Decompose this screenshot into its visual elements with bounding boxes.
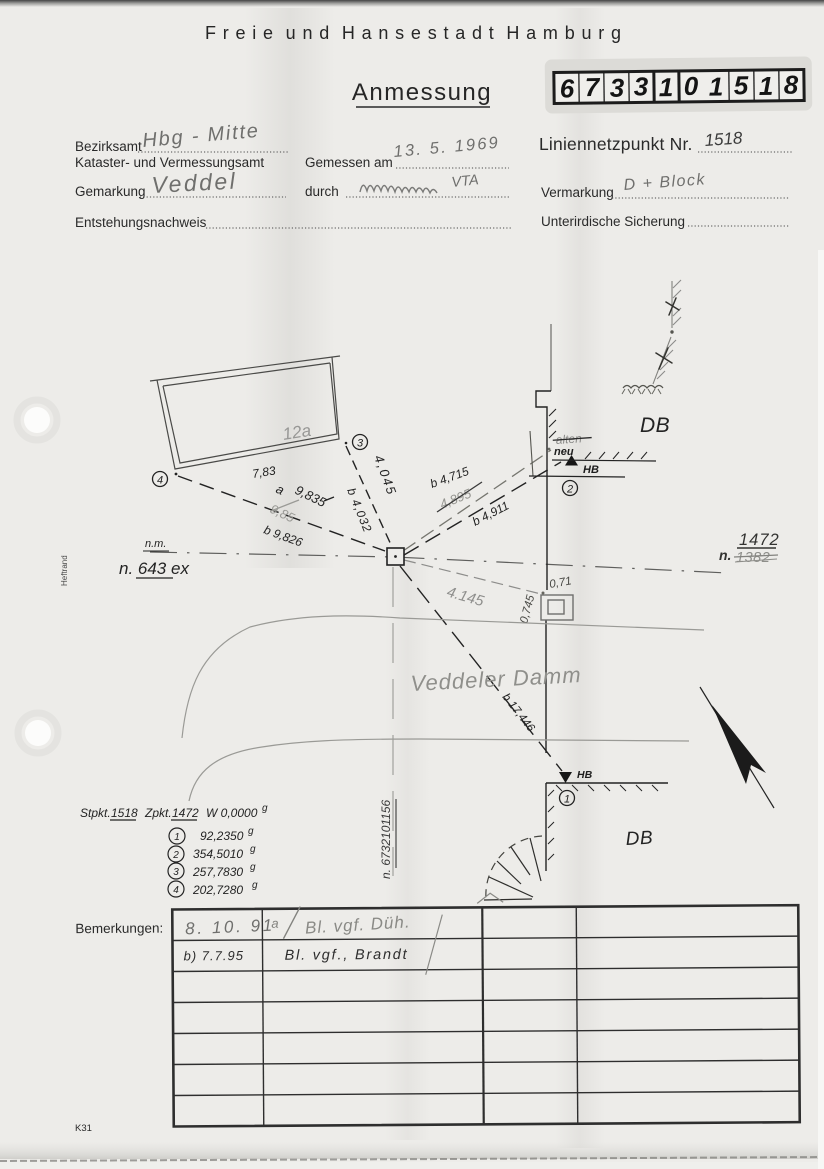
svg-text:202,7280: 202,7280 [192,883,243,897]
svg-text:92,2350: 92,2350 [200,829,244,843]
svg-text:3: 3 [173,867,179,878]
svg-text:1518: 1518 [111,806,138,820]
svg-text:4: 4 [173,885,179,896]
svg-text:Liniennetzpunkt Nr.: Liniennetzpunkt Nr. [539,134,693,154]
svg-text:2: 2 [172,850,179,861]
svg-text:Entstehungsnachweis: Entstehungsnachweis [75,215,207,230]
svg-text:5: 5 [734,70,749,100]
svg-text:Stpkt.: Stpkt. [80,806,111,820]
svg-text:g: g [252,880,258,891]
svg-text:VTA: VTA [451,172,480,191]
svg-text:8. 10. 91: 8. 10. 91 [185,916,275,939]
svg-text:a: a [271,916,278,931]
svg-text:K31: K31 [75,1123,92,1134]
svg-text:8: 8 [784,70,799,100]
svg-text:0: 0 [684,71,699,101]
svg-text:3: 3 [634,71,649,101]
svg-text:durch: durch [305,184,339,199]
svg-text:1: 1 [709,71,724,101]
svg-text:g: g [250,844,256,855]
svg-text:Gemessen am: Gemessen am [305,155,393,170]
svg-text:DB: DB [625,828,653,850]
svg-text:Heftrand: Heftrand [60,555,69,586]
svg-text:HB: HB [583,464,599,476]
svg-text:1382: 1382 [736,550,770,566]
svg-text:b) 7.7.95: b) 7.7.95 [184,948,244,963]
svg-text:Vermarkung: Vermarkung [541,185,614,200]
svg-text:7: 7 [585,72,601,102]
svg-text:Unterirdische Sicherung: Unterirdische Sicherung [541,214,685,229]
svg-text:W 0,0000: W 0,0000 [206,806,258,820]
svg-text:257,7830: 257,7830 [192,865,243,879]
svg-text:1472: 1472 [739,531,780,549]
svg-text:n.m.: n.m. [145,538,166,550]
svg-text:1: 1 [759,71,774,101]
svg-text:3: 3 [357,438,364,450]
svg-text:Bl. vgf., Brandt: Bl. vgf., Brandt [285,947,409,964]
svg-text:1472: 1472 [172,806,199,820]
svg-text:354,5010: 354,5010 [193,847,243,861]
svg-text:3: 3 [610,73,625,103]
svg-text:g: g [262,803,268,814]
svg-text:DB: DB [640,414,670,437]
svg-text:6: 6 [560,73,575,103]
svg-text:Veddel: Veddel [151,168,238,198]
svg-text:g: g [248,826,254,837]
svg-text:Gemarkung: Gemarkung [75,184,146,199]
svg-text:F r e i e u n d H a n s e s: F r e i e u n d H a n s e s t a d t H a … [205,23,625,43]
svg-text:Zpkt.: Zpkt. [144,806,172,820]
svg-text:n. 643 ex: n. 643 ex [119,559,189,578]
svg-text:n.: n. [719,547,731,563]
svg-text:Bemerkungen:: Bemerkungen: [75,921,163,937]
svg-text:1: 1 [659,72,674,102]
svg-text:HB: HB [577,769,593,781]
svg-text:g: g [250,862,256,873]
svg-text:1: 1 [564,794,570,806]
svg-text:1518: 1518 [704,128,744,150]
svg-text:n. 6732101156: n. 6732101156 [379,799,393,879]
svg-text:2: 2 [566,484,573,496]
svg-text:4: 4 [157,475,163,487]
svg-text:Anmessung: Anmessung [352,79,492,106]
svg-text:Bezirksamt: Bezirksamt [75,139,142,154]
svg-text:1: 1 [174,832,180,843]
